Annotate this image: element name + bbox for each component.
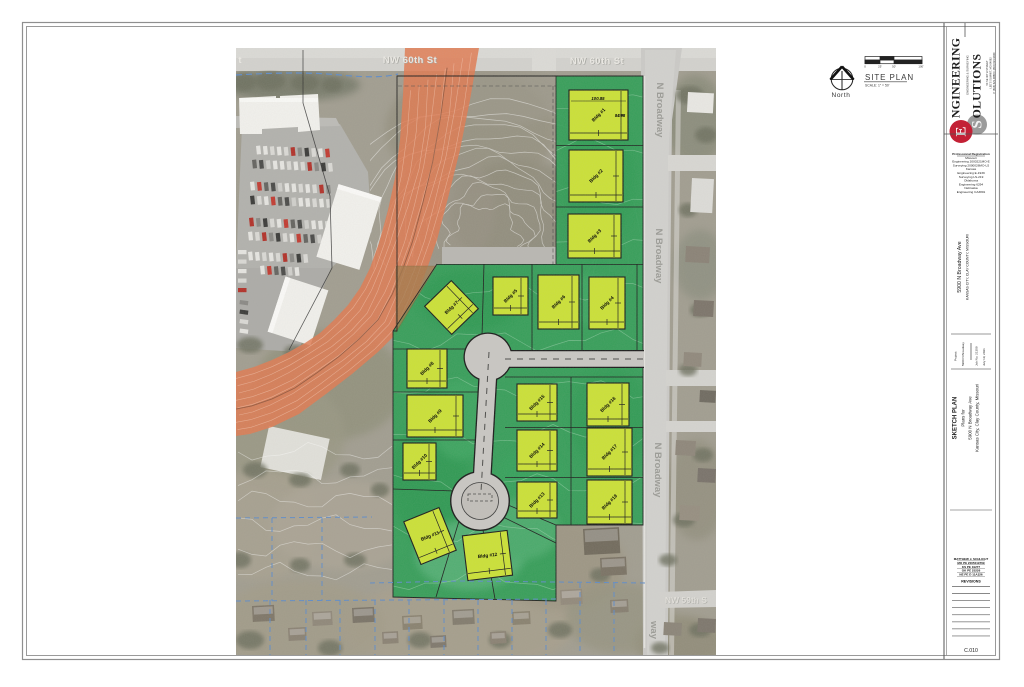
svg-text:North: North	[832, 92, 851, 99]
svg-text:SCALE:: SCALE:	[865, 84, 877, 88]
svg-text:REVISIONS: REVISIONS	[961, 580, 981, 584]
svg-text:Kansas City, Clay County, Miss: Kansas City, Clay County, Missouri	[975, 384, 980, 452]
svg-text:1" = 50': 1" = 50'	[878, 84, 890, 88]
svg-text:5900 N Broadway Ave: 5900 N Broadway Ave	[957, 241, 963, 292]
svg-text:50 SE 30TH STREET: 50 SE 30TH STREET	[985, 60, 989, 85]
svg-text:100': 100'	[918, 65, 924, 69]
svg-text:July 19, 2021: July 19, 2021	[982, 348, 986, 366]
svg-text:Engineering CA3801: Engineering CA3801	[957, 190, 986, 194]
svg-text:NGINEERING: NGINEERING	[949, 38, 963, 118]
svg-text:SITE PLAN: SITE PLAN	[865, 73, 914, 82]
svg-text:Project:: Project:	[954, 351, 958, 361]
svg-text:50': 50'	[892, 65, 896, 69]
svg-text:OLUTIONS: OLUTIONS	[970, 54, 984, 119]
svg-text:Job No. 21309: Job No. 21309	[975, 346, 979, 366]
svg-text:5900 N Broadway: 5900 N Broadway	[961, 342, 965, 366]
svg-text:S: S	[970, 120, 986, 128]
svg-text:SKETCH PLAN: SKETCH PLAN	[953, 397, 959, 440]
svg-text:NE PE E-11A326: NE PE E-11A326	[959, 573, 983, 577]
svg-text:KANSAS CITY, CLAY COUNTY, MISS: KANSAS CITY, CLAY COUNTY, MISSOURI	[966, 234, 970, 300]
svg-text:Plans for: Plans for	[961, 409, 966, 427]
svg-text:LEE'S SUMMIT, MO 64082: LEE'S SUMMIT, MO 64082	[989, 57, 993, 89]
svg-text:5900 N Broadway Ave: 5900 N Broadway Ave	[968, 396, 973, 440]
svg-text:C.010: C.010	[964, 648, 978, 654]
svg-text:P (816) 623-9888 F (816) 623-: P (816) 623-9888 F (816) 623-9849	[992, 52, 996, 93]
svg-text:25': 25'	[878, 65, 882, 69]
svg-text:E: E	[954, 126, 970, 136]
